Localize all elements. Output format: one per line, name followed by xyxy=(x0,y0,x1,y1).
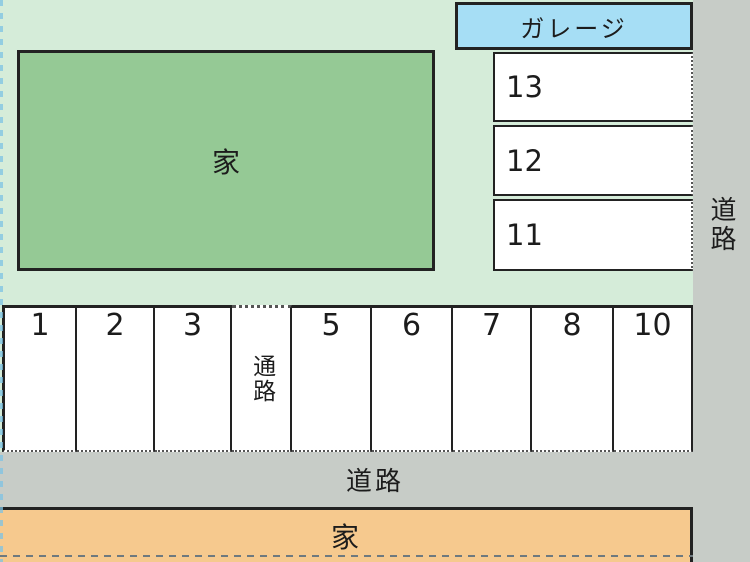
road-bottom-area: 道路 xyxy=(0,452,750,507)
parking-stall-10: 10 xyxy=(614,305,693,452)
stall-number: 6 xyxy=(402,309,421,342)
stall-number: 7 xyxy=(482,309,501,342)
parking-stall-7: 7 xyxy=(453,305,532,452)
road-right-label: 道路 xyxy=(703,196,740,254)
parking-stall-8: 8 xyxy=(532,305,614,452)
scan-edge-bottom xyxy=(0,555,693,557)
garage-stall-label: 11 xyxy=(506,218,543,252)
parking-layout-diagram: 道路 道路 家 ガレージ 13 12 11 1 2 3 通路 xyxy=(0,0,750,562)
stall-number: 3 xyxy=(183,309,202,342)
parking-stall-2: 2 xyxy=(77,305,155,452)
parking-stall-3: 3 xyxy=(155,305,232,452)
aisle-label: 通路 xyxy=(248,354,273,404)
stall-number: 10 xyxy=(633,309,671,342)
garage-stall-11: 11 xyxy=(493,199,693,271)
stall-number: 2 xyxy=(105,309,124,342)
parking-aisle: 通路 xyxy=(232,305,292,452)
parking-stall-5: 5 xyxy=(292,305,372,452)
stall-number: 1 xyxy=(30,309,49,342)
stall-number: 5 xyxy=(321,309,340,342)
parking-stall-6: 6 xyxy=(372,305,453,452)
garage-box: ガレージ xyxy=(455,2,693,50)
house-main: 家 xyxy=(17,50,435,271)
house-neighbor-label: 家 xyxy=(331,516,359,556)
stall-number: 8 xyxy=(562,309,581,342)
scan-edge-left xyxy=(0,0,3,562)
house-main-label: 家 xyxy=(212,141,240,181)
garage-stall-label: 12 xyxy=(506,144,543,178)
garage-stall-13: 13 xyxy=(493,52,693,122)
garage-stall-12: 12 xyxy=(493,125,693,196)
garage-stall-label: 13 xyxy=(506,70,543,104)
parking-stall-1: 1 xyxy=(2,305,77,452)
house-neighbor: 家 xyxy=(0,507,693,562)
parking-row: 1 2 3 通路 5 6 7 8 10 xyxy=(2,305,693,452)
road-right-label-wrap: 道路 xyxy=(693,196,750,254)
garage-stall-list: 13 12 11 xyxy=(493,52,693,271)
road-bottom-label: 道路 xyxy=(0,452,750,507)
garage-label: ガレージ xyxy=(520,9,628,44)
